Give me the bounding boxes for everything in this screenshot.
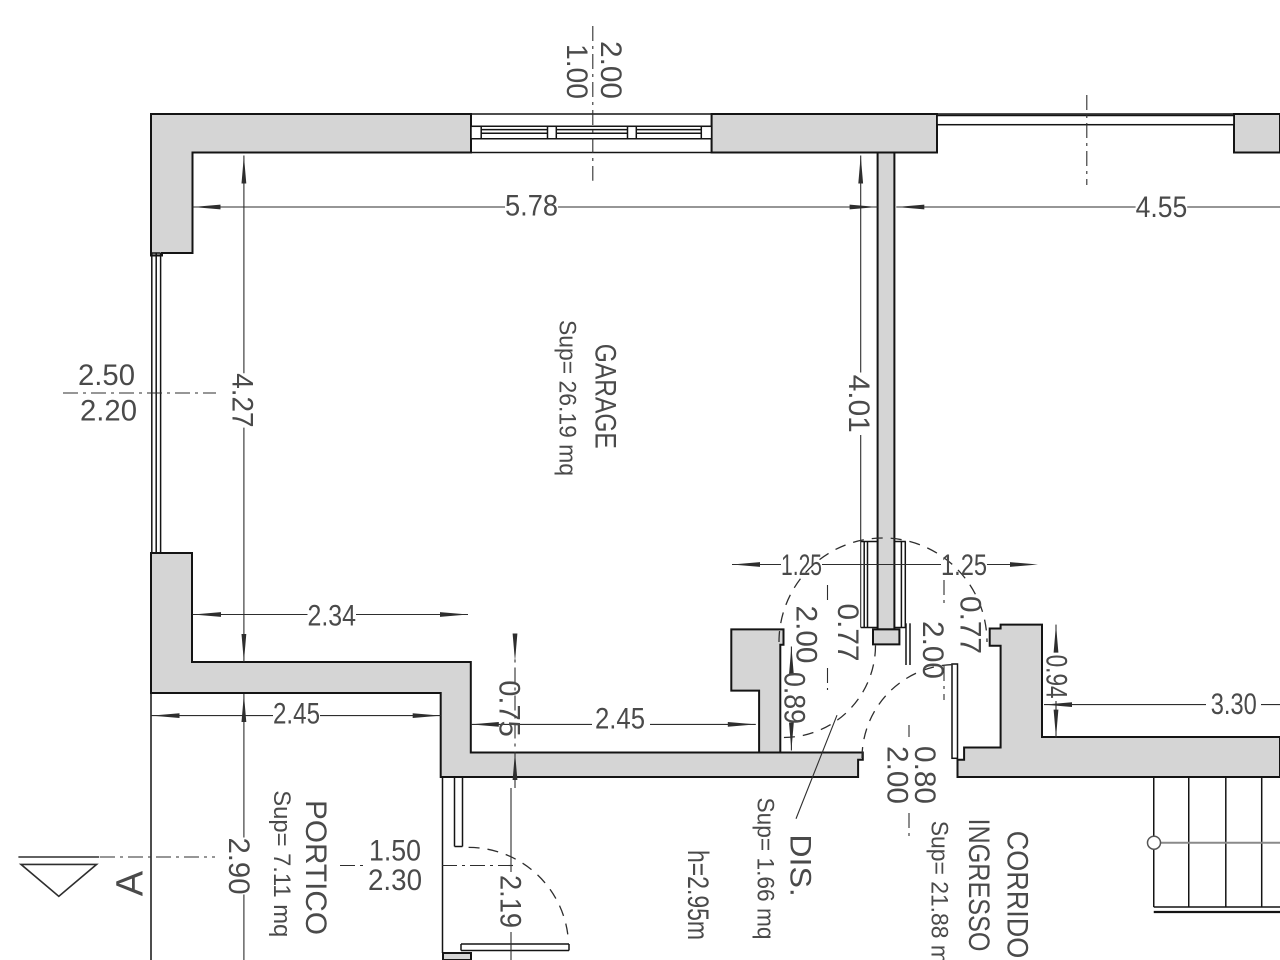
svg-text:DIS.: DIS. <box>784 834 817 897</box>
svg-text:h=2.95m: h=2.95m <box>681 850 714 940</box>
svg-text:1.50: 1.50 <box>369 835 421 868</box>
svg-text:2.00: 2.00 <box>790 606 823 664</box>
svg-text:4.27: 4.27 <box>225 373 258 427</box>
svg-text:2.50: 2.50 <box>78 359 135 392</box>
svg-text:Sup= 21.88 mq: Sup= 21.88 mq <box>925 821 952 960</box>
svg-text:Sup= 1.66 mq: Sup= 1.66 mq <box>752 798 779 940</box>
svg-text:CORRIDOIO: CORRIDOIO <box>1001 831 1034 960</box>
svg-text:INGRESSO: INGRESSO <box>962 819 995 952</box>
svg-text:0.75: 0.75 <box>492 680 525 737</box>
svg-text:4.01: 4.01 <box>842 375 875 433</box>
svg-text:1.00: 1.00 <box>560 44 593 99</box>
svg-text:2.00: 2.00 <box>594 41 627 99</box>
svg-text:0.77: 0.77 <box>954 596 987 654</box>
svg-text:Sup= 7.11 mq: Sup= 7.11 mq <box>268 790 295 937</box>
svg-text:5.78: 5.78 <box>505 190 558 223</box>
svg-text:2.34: 2.34 <box>308 599 357 632</box>
svg-text:2.19: 2.19 <box>494 875 527 928</box>
svg-text:4.55: 4.55 <box>1136 191 1188 224</box>
svg-text:3.30: 3.30 <box>1211 688 1257 721</box>
svg-text:2.30: 2.30 <box>368 864 422 897</box>
svg-text:1.25: 1.25 <box>941 549 987 582</box>
svg-text:2.00: 2.00 <box>881 746 914 804</box>
svg-text:0.77: 0.77 <box>831 604 864 662</box>
svg-text:PORTICO: PORTICO <box>299 800 332 935</box>
svg-text:0.89: 0.89 <box>777 672 810 724</box>
svg-text:2.90: 2.90 <box>222 838 255 895</box>
svg-text:2.45: 2.45 <box>273 698 320 731</box>
svg-text:2.45: 2.45 <box>595 703 645 736</box>
svg-text:A: A <box>109 870 151 896</box>
svg-text:1.25: 1.25 <box>781 549 822 582</box>
svg-text:0.94: 0.94 <box>1040 655 1073 699</box>
svg-text:Sup= 26.19 mq: Sup= 26.19 mq <box>554 320 581 476</box>
svg-text:2.20: 2.20 <box>80 395 137 428</box>
svg-text:2.00: 2.00 <box>916 621 949 679</box>
svg-text:GARAGE: GARAGE <box>589 344 622 449</box>
